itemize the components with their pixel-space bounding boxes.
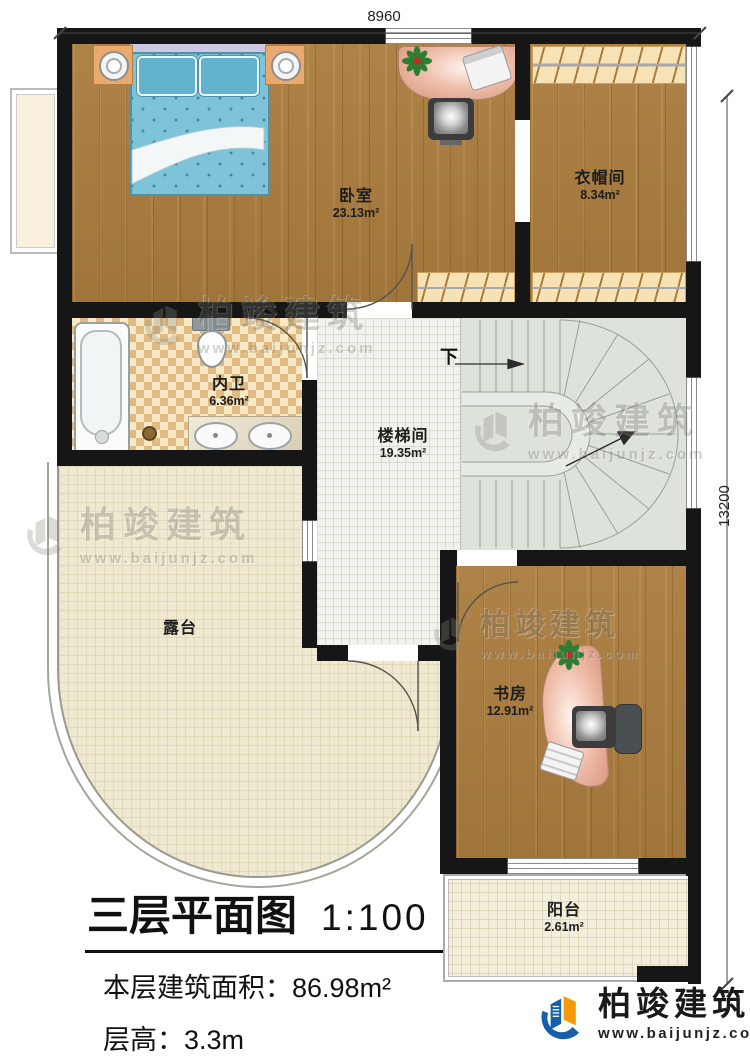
plan-title-row: 三层平面图1:100 [85, 882, 443, 953]
left-bay [10, 88, 61, 254]
bed-pillow [199, 56, 259, 96]
wardrobe-rack [417, 272, 515, 304]
stairwell-floor [460, 318, 687, 550]
sink-drain [213, 433, 218, 438]
plant-icon [554, 640, 584, 670]
floor-plan-page: 8960 13200 卧室23.13m² 衣帽间8.34m² 内卫6.36m² … [0, 0, 750, 1056]
brand-logo-icon [536, 986, 588, 1042]
floor-height-value: 3.3m [184, 1025, 244, 1055]
computer-monitor-icon [428, 98, 474, 140]
lamp-inner [278, 58, 294, 74]
study-door-gap [457, 550, 517, 566]
nightstand [93, 45, 133, 85]
brand-company-name: 柏竣建筑 [598, 987, 750, 1020]
floor-drain-icon [142, 426, 157, 441]
brand-website: www.baijunjz.com [598, 1025, 750, 1042]
bedroom-window [385, 28, 472, 44]
stairs-down-label: 下 [440, 343, 458, 369]
wall-bathroom-left [57, 318, 72, 466]
terrace-door-gap [348, 645, 418, 661]
bathtub-inner [80, 330, 122, 436]
floor-height-label: 层高： [103, 1025, 184, 1055]
terrace-window [302, 520, 317, 562]
wall-bathroom-bottom [57, 450, 317, 466]
dimension-right-label: 13200 [696, 470, 750, 542]
wardrobe-rack [532, 46, 686, 84]
room-label-terrace: 露台 [120, 620, 240, 638]
wall-terrace-hallway [302, 560, 317, 648]
wall-bathroom-right [302, 380, 317, 450]
room-label-balcony: 阳台2.61m² [504, 902, 624, 935]
title-block: 三层平面图1:100 本层建筑面积：86.98m² 层高：3.3m [85, 882, 443, 1056]
room-label-bathroom: 内卫6.36m² [169, 376, 289, 409]
wall-bedroom-cloakroom [515, 222, 530, 318]
wall-balcony-step [637, 966, 701, 982]
wall-bedroom-cloakroom [515, 44, 530, 120]
room-label-bedroom: 卧室23.13m² [296, 188, 416, 221]
computer-monitor-icon [572, 706, 616, 748]
floor-area-row: 本层建筑面积：86.98m² [103, 966, 443, 1005]
plan-scale: 1:100 [321, 897, 429, 938]
wall-top [57, 28, 701, 44]
monitor-screen [576, 711, 606, 741]
wardrobe-rack [532, 272, 686, 304]
faucet-icon [95, 430, 109, 444]
sink [194, 422, 238, 450]
wall-terrace-hallway [302, 466, 317, 520]
brand-logo: 柏竣建筑 www.baijunjz.com [536, 986, 750, 1042]
lamp-icon [99, 51, 129, 81]
sink [248, 422, 292, 450]
room-label-stairwell: 楼梯间19.35m² [343, 428, 463, 461]
monitor-screen [434, 102, 468, 134]
floor-height-row: 层高：3.3m [103, 1018, 443, 1056]
bed-pillow [137, 56, 197, 96]
dimension-top-label: 8960 [345, 8, 423, 25]
balcony-window [507, 858, 639, 874]
bathroom-door-gap [302, 318, 317, 380]
wall-study-left [440, 566, 456, 874]
room-label-cloakroom: 衣帽间8.34m² [540, 170, 660, 203]
plant-icon [402, 46, 432, 76]
lamp-icon [271, 51, 301, 81]
floor-area-value: 86.98m² [292, 973, 391, 1003]
sink-drain [267, 433, 272, 438]
lamp-inner [106, 58, 122, 74]
toilet-tank [192, 316, 230, 331]
nightstand [265, 45, 305, 85]
floor-area-label: 本层建筑面积： [103, 973, 292, 1003]
wall-left [57, 28, 72, 318]
monitor-stand [440, 140, 462, 145]
bathtub [74, 322, 130, 456]
cloakroom-window [686, 46, 701, 262]
hallway-floor [317, 318, 460, 645]
room-label-study: 书房12.91m² [450, 686, 570, 719]
bedroom-door-gap [347, 302, 412, 318]
office-chair [614, 704, 642, 754]
plan-title: 三层平面图 [87, 892, 297, 939]
